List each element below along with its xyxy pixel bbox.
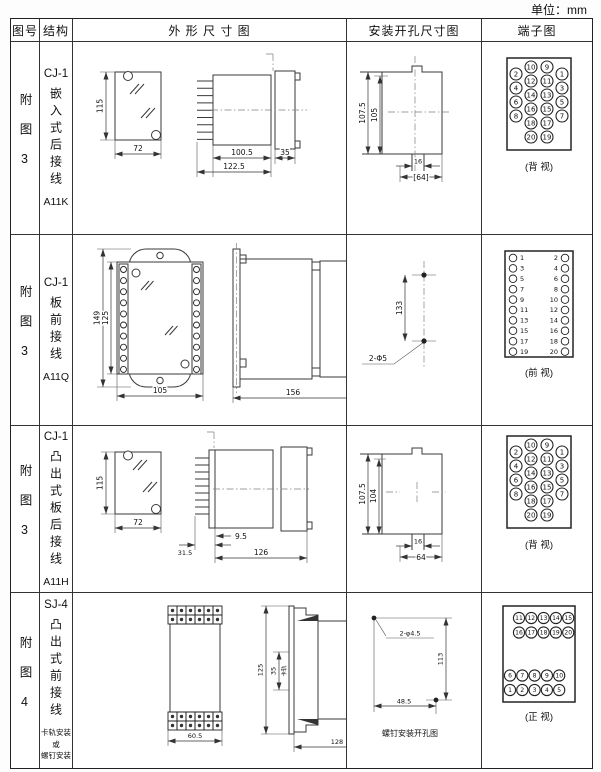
svg-text:8: 8 [532,672,536,679]
manual-page: 单位：mm 图号 结构 外 形 尺 寸 图 安装开孔尺寸图 端子图 附图3 CJ… [0,0,601,772]
svg-text:10: 10 [526,64,535,72]
mounting-note: 卡轨安装 或 螺钉安装 [41,727,71,762]
dim-label: 16 [413,158,421,166]
terminal-cell-row2: 135791113151719 2468101214161820 (前 视) [482,235,592,426]
terminal-outline [505,251,573,357]
dimensions: 133 2-Φ5 [368,275,404,363]
svg-text:3: 3 [520,265,524,273]
svg-text:1: 1 [520,254,524,262]
svg-text:14: 14 [549,317,557,325]
dim-label: 35 [280,148,290,157]
col-header-terminal: 端子图 [482,19,592,42]
svg-text:16: 16 [515,629,523,636]
svg-text:19: 19 [520,348,528,356]
dim-label: 107.5 [358,483,367,505]
svg-text:9: 9 [544,64,548,72]
svg-text:14: 14 [552,615,560,622]
svg-text:15: 15 [520,327,528,335]
mounting-hole-drawing-a11q: 133 2-Φ5 [348,235,481,425]
svg-text:6: 6 [508,672,512,679]
dim-label: 60.5 [188,732,202,740]
svg-text:17: 17 [520,337,528,345]
col-header-mounting: 安装开孔尺寸图 [347,19,482,42]
dim-label: 72 [133,144,143,153]
svg-text:20: 20 [549,348,557,356]
mounting-cell-row2: 133 2-Φ5 [347,235,482,426]
svg-text:18: 18 [539,629,547,636]
svg-text:3: 3 [559,85,563,93]
side-view [289,606,346,734]
structure-row3: CJ-1 凸出式板后接线 A11H [40,426,73,593]
dim-label: 115 [96,99,105,114]
dim-label: 64 [416,553,426,562]
svg-text:12: 12 [527,615,535,622]
svg-text:13: 13 [542,470,551,478]
svg-text:13: 13 [520,317,528,325]
svg-text:13: 13 [539,615,547,622]
svg-text:7: 7 [559,491,563,499]
outline-cell-row1: 115 72 100.5 122.5 35 [73,42,347,235]
model-label: CJ-1 [44,277,68,289]
figure-no-row3: 附图3 [11,426,40,593]
dim-label: 16 [413,538,421,546]
front-view [117,249,203,387]
dimensions: 115 72 100.5 122.5 35 [96,72,296,172]
terminal-diagram-front-a11q: 135791113151719 2468101214161820 (前 视) [483,235,592,425]
svg-text:2: 2 [520,687,524,694]
dim-label: 31.5 [178,549,192,557]
svg-text:12: 12 [526,456,535,464]
dim-label: 128 [331,738,343,746]
svg-text:11: 11 [520,306,528,314]
svg-text:5: 5 [557,687,561,694]
dim-label: 125 [257,663,265,675]
outline-cell-row4: 60.5 125 35 卡轨 128 [73,593,347,768]
svg-text:10: 10 [526,442,535,450]
svg-text:3: 3 [532,687,536,694]
mounting-cell-row1: 107.5 105 16 [64] [347,42,482,235]
col-header-structure: 结构 [40,19,73,42]
svg-text:2: 2 [513,71,517,79]
svg-text:6: 6 [553,275,557,283]
model-label: CJ-1 [44,68,68,80]
structure-row1: CJ-1 嵌入式后接线 A11K [40,42,73,235]
extension-lines [374,459,442,562]
mounting-hole [421,338,426,343]
structure-row4: SJ-4 凸出式前接线 卡轨安装 或 螺钉安装 [40,593,73,768]
svg-text:14: 14 [526,470,535,478]
svg-text:8: 8 [553,285,557,293]
svg-text:19: 19 [542,512,551,520]
terminal-cell-row3: 101214161820 91113151719 2468 1357 (背 视) [482,426,592,593]
model-label: SJ-4 [44,599,68,611]
terminal-diagram-front-sj4: 1112131415 1617181920 678910 12345 (正 视) [483,594,592,768]
svg-text:4: 4 [513,463,518,471]
svg-text:6: 6 [513,477,518,485]
svg-text:16: 16 [526,484,535,492]
dimensions: 2-φ4.5 113 48.5 [374,618,446,706]
dim-label: 126 [254,548,269,557]
type-code: A11K [44,196,69,208]
dim-label: [64] [413,173,428,182]
terminal-grid [504,612,573,695]
dimensions: 107.5 104 16 64 [358,454,442,562]
mounting-cell-row4: 2-φ4.5 113 48.5 螺钉安装开孔图 [347,593,482,768]
type-code: A11H [43,576,69,588]
svg-text:7: 7 [520,285,524,293]
svg-text:8: 8 [513,491,517,499]
svg-text:2: 2 [513,449,517,457]
svg-text:19: 19 [542,134,551,142]
front-view [115,72,161,141]
svg-text:3: 3 [559,463,563,471]
center-lines [211,54,307,110]
mounting-hole [421,272,426,277]
figure-no-row4: 附图4 [11,593,40,768]
svg-text:15: 15 [564,615,572,622]
dim-label: 48.5 [396,697,410,705]
outline-drawing-sj4: 60.5 125 35 卡轨 128 [73,594,346,768]
structure-row2: CJ-1 板前接线 A11Q [40,235,73,426]
svg-text:2: 2 [553,254,557,262]
figure-no-row1: 附图3 [11,42,40,235]
dim-label: 105 [370,108,379,123]
svg-text:11: 11 [542,78,551,86]
svg-text:17: 17 [542,498,551,506]
svg-text:9: 9 [520,296,524,304]
dim-label: 156 [286,388,301,397]
hole-spec-label: 2-φ4.5 [399,629,420,637]
view-caption: (背 视) [525,539,553,551]
structure-label: 嵌入式后接线 [48,87,65,189]
svg-text:12: 12 [526,78,535,86]
dim-label: 105 [153,386,168,395]
dim-label: 115 [96,476,105,491]
view-caption: (正 视) [525,711,553,723]
outline-drawing-a11k: 115 72 100.5 122.5 35 [73,42,346,234]
svg-text:20: 20 [564,629,572,636]
structure-label: 凸出式前接线 [48,618,65,720]
svg-text:9: 9 [544,442,548,450]
svg-text:5: 5 [559,99,563,107]
svg-text:20: 20 [526,134,535,142]
structure-label: 凸出式板后接线 [48,450,65,569]
mounting-hole-drawing-a11k: 107.5 105 16 [64] [348,42,481,234]
svg-text:11: 11 [515,615,523,622]
dim-label: 133 [395,301,404,316]
dim-label: 100.5 [231,148,253,157]
svg-text:14: 14 [526,92,535,100]
view-caption: (背 视) [525,161,553,173]
svg-text:5: 5 [520,275,524,283]
svg-text:1: 1 [559,71,563,79]
col-header-figure: 图号 [11,19,40,42]
terminal-grid [509,254,569,355]
terminal-diagram-back-a11h: 101214161820 91113151719 2468 1357 (背 视) [483,426,592,592]
dim-label: 125 [101,311,110,326]
svg-text:1: 1 [559,449,563,457]
outline-drawing-a11q: 149 125 105 156 115 [73,235,346,425]
center-lines [207,432,309,489]
svg-text:15: 15 [542,484,551,492]
terminal-numbers: 135791113151719 2468101214161820 [520,254,558,356]
svg-text:4: 4 [513,85,518,93]
svg-text:10: 10 [555,672,563,679]
svg-text:7: 7 [520,672,524,679]
svg-text:18: 18 [526,498,535,506]
svg-text:16: 16 [526,106,535,114]
svg-text:4: 4 [544,687,548,694]
svg-text:13: 13 [542,92,551,100]
dim-label: 107.5 [358,102,367,124]
svg-text:18: 18 [549,337,557,345]
svg-text:8: 8 [513,113,517,121]
type-code: A11Q [43,371,69,383]
svg-text:10: 10 [549,296,557,304]
outline-drawing-a11h: 115 72 9.5 31.5 126 [73,426,346,592]
figure-no-row2: 附图3 [11,235,40,426]
svg-text:11: 11 [542,456,551,464]
dimensions: 115 72 9.5 31.5 126 [96,452,308,558]
side-view [233,249,346,387]
dim-label: 72 [133,518,143,527]
svg-text:20: 20 [526,512,535,520]
outline-cell-row2: 149 125 105 156 115 [73,235,347,426]
terminal-diagram-back-a11k: 101214161820 91113151719 2468 1357 (背 视) [483,42,592,234]
mounting-hole [433,697,438,702]
unit-label: 单位：mm [531,1,587,18]
col-header-outline: 外 形 尺 寸 图 [73,19,347,42]
svg-text:12: 12 [549,306,557,314]
mounting-cell-row3: 107.5 104 16 64 [347,426,482,593]
svg-text:17: 17 [542,120,551,128]
mounting-hole [371,615,376,620]
terminal-cell-row4: 1112131415 1617181920 678910 12345 (正 视) [482,593,592,768]
center-lines [386,482,446,502]
dimensions: 107.5 105 16 [64] [358,72,442,182]
dim-label: 122.5 [223,162,245,171]
view-caption: (前 视) [525,367,553,379]
front-view [115,451,161,514]
svg-text:5: 5 [559,477,563,485]
svg-text:17: 17 [527,629,535,636]
svg-text:15: 15 [542,106,551,114]
dim-label: 9.5 [235,532,247,541]
svg-text:16: 16 [549,327,557,335]
front-view [168,606,222,730]
svg-text:18: 18 [526,120,535,128]
rail-label: 卡轨 [280,665,288,677]
svg-text:1: 1 [508,687,512,694]
svg-text:7: 7 [559,113,563,121]
dim-label: 113 [436,652,444,664]
svg-text:19: 19 [552,629,560,636]
spec-table: 图号 结构 外 形 尺 寸 图 安装开孔尺寸图 端子图 附图3 CJ-1 嵌入式… [10,18,593,769]
mounting-hole-drawing-sj4: 2-φ4.5 113 48.5 螺钉安装开孔图 [348,594,481,768]
svg-text:4: 4 [553,265,557,273]
svg-text:6: 6 [513,99,518,107]
structure-label: 板前接线 [48,296,65,364]
extension-lines [362,275,436,364]
model-label: CJ-1 [44,431,68,443]
terminal-cell-row1: 101214161820 91113151719 2468 1357 (背 视) [482,42,592,235]
dim-label: 35 [270,666,278,674]
outline-cell-row3: 115 72 9.5 31.5 126 [73,426,347,593]
drawing-caption: 螺钉安装开孔图 [382,728,438,738]
dim-label: 104 [369,489,378,504]
hole-spec-label: 2-Φ5 [368,354,386,363]
svg-text:9: 9 [544,672,548,679]
mounting-hole-drawing-a11h: 107.5 104 16 64 [348,426,481,592]
